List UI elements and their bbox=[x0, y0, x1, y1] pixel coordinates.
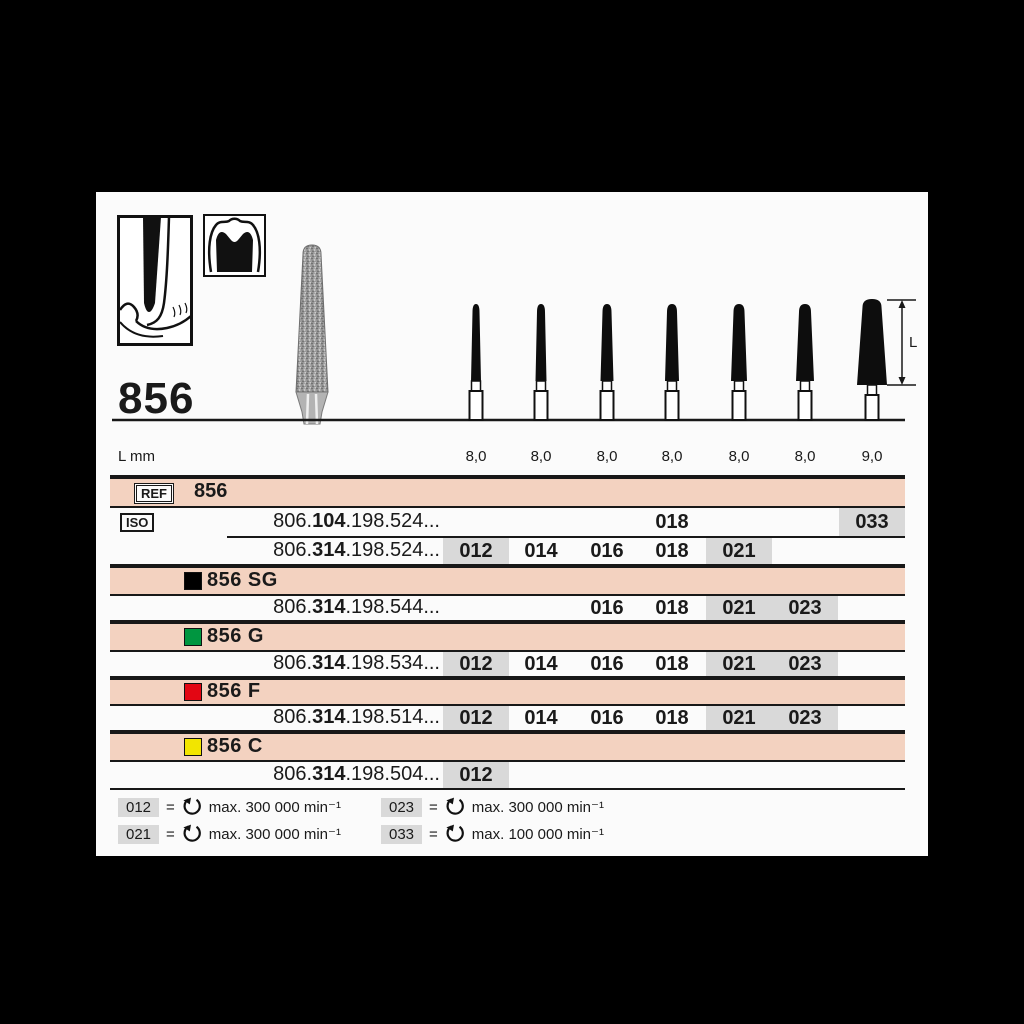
variant-name: 856 G bbox=[207, 625, 264, 648]
bur-head bbox=[471, 304, 481, 381]
size-cell: 014 bbox=[508, 538, 574, 564]
dimension-label: L bbox=[909, 334, 917, 351]
bur-shank bbox=[666, 391, 679, 420]
bur-head bbox=[536, 304, 547, 381]
bur-head bbox=[857, 299, 887, 385]
grit-color-square-black bbox=[184, 572, 202, 590]
variant-row-g: 856 G bbox=[110, 624, 905, 650]
size-cell-restricted: 021 bbox=[706, 596, 772, 620]
size-cell-restricted: 012 bbox=[443, 706, 509, 730]
grit-color-square-green bbox=[184, 628, 202, 646]
size-cell: 018 bbox=[639, 508, 705, 536]
size-cell-restricted: 033 bbox=[839, 508, 905, 536]
legend-item-033: 033 = max. 100 000 min⁻¹ bbox=[381, 823, 604, 845]
iso-code: 806.314.198.504... bbox=[216, 763, 440, 786]
size-cell-restricted: 023 bbox=[772, 596, 838, 620]
legend-size-badge: 023 bbox=[381, 798, 422, 817]
bur-head bbox=[665, 304, 679, 381]
length-value: 8,0 bbox=[706, 448, 772, 465]
bur-head bbox=[601, 304, 614, 381]
iso-code: 806.104.198.524... bbox=[216, 510, 440, 533]
size-cell: 016 bbox=[574, 596, 640, 620]
bur-shank bbox=[799, 391, 812, 420]
size-cell: 016 bbox=[574, 538, 640, 564]
size-cell: 018 bbox=[639, 538, 705, 564]
grit-color-square-red bbox=[184, 683, 202, 701]
length-value: 8,0 bbox=[508, 448, 574, 465]
size-cell-restricted: 012 bbox=[443, 652, 509, 676]
legend-item-021: 021 = max. 300 000 min⁻¹ bbox=[118, 823, 341, 845]
bur-head bbox=[796, 304, 814, 381]
size-cell: 018 bbox=[639, 652, 705, 676]
iso-code: 806.314.198.524... bbox=[216, 539, 440, 562]
legend-size-badge: 012 bbox=[118, 798, 159, 817]
size-cell-restricted: 012 bbox=[443, 538, 509, 564]
legend-speed-text: max. 300 000 min⁻¹ bbox=[209, 798, 341, 816]
length-row-label: L mm bbox=[118, 448, 155, 465]
variant-row-sg: 856 SG bbox=[110, 568, 905, 594]
length-value: 8,0 bbox=[772, 448, 838, 465]
length-value: 8,0 bbox=[443, 448, 509, 465]
bur-shank bbox=[733, 391, 746, 420]
ref-tag: REF bbox=[134, 483, 174, 504]
bur-silhouettes bbox=[470, 299, 888, 420]
bur-shank bbox=[535, 391, 548, 420]
rotation-speed-icon bbox=[182, 824, 202, 844]
variant-name: 856 C bbox=[207, 735, 263, 758]
iso-code: 806.314.198.514... bbox=[216, 706, 440, 729]
grit-color-square-yellow bbox=[184, 738, 202, 756]
bur-neck bbox=[472, 381, 481, 391]
size-cell-restricted: 023 bbox=[772, 706, 838, 730]
iso-row-handpiece: 806.314.198.524... 012 014 016 018 021 bbox=[96, 538, 928, 564]
legend-speed-text: max. 100 000 min⁻¹ bbox=[472, 825, 604, 843]
size-cell: 018 bbox=[639, 596, 705, 620]
ref-value: 856 bbox=[194, 480, 227, 503]
size-cell-restricted: 012 bbox=[443, 762, 509, 788]
legend-item-023: 023 = max. 300 000 min⁻¹ bbox=[381, 796, 604, 818]
code-row-f: 806.314.198.514... 012 014 016 018 021 0… bbox=[96, 706, 928, 730]
iso-tag: ISO bbox=[120, 513, 154, 532]
bur-neck bbox=[868, 385, 877, 395]
variant-row-f: 856 F bbox=[110, 680, 905, 704]
code-row-sg: 806.314.198.544... 016 018 021 023 bbox=[96, 596, 928, 620]
bur-neck bbox=[668, 381, 677, 391]
rotation-speed-icon bbox=[445, 824, 465, 844]
variant-name: 856 F bbox=[207, 680, 261, 703]
bur-shank bbox=[470, 391, 483, 420]
code-row-c: 806.314.198.504... 012 bbox=[96, 762, 928, 788]
bur-neck bbox=[801, 381, 810, 391]
legend-speed-text: max. 300 000 min⁻¹ bbox=[209, 825, 341, 843]
size-cell-restricted: 021 bbox=[706, 706, 772, 730]
catalog-panel: 856 L L mm 8,0 8,0 8,0 8,0 8,0 8,0 9,0 R… bbox=[96, 192, 928, 856]
size-cell: 016 bbox=[574, 652, 640, 676]
bur-head bbox=[731, 304, 747, 381]
legend-size-badge: 033 bbox=[381, 825, 422, 844]
iso-code: 806.314.198.544... bbox=[216, 596, 440, 619]
size-cell: 018 bbox=[639, 706, 705, 730]
variant-name: 856 SG bbox=[207, 569, 278, 592]
bur-neck bbox=[537, 381, 546, 391]
legend-size-badge: 021 bbox=[118, 825, 159, 844]
code-row-g: 806.314.198.534... 012 014 016 018 021 0… bbox=[96, 652, 928, 676]
iso-code: 806.314.198.534... bbox=[216, 652, 440, 675]
length-value: 8,0 bbox=[639, 448, 705, 465]
ref-row: REF 856 bbox=[110, 479, 905, 506]
bur-neck bbox=[603, 381, 612, 391]
divider-thin bbox=[110, 788, 905, 790]
size-cell-restricted: 023 bbox=[772, 652, 838, 676]
bur-shank bbox=[866, 395, 879, 420]
size-cell-restricted: 021 bbox=[706, 652, 772, 676]
bur-neck bbox=[735, 381, 744, 391]
size-cell: 016 bbox=[574, 706, 640, 730]
length-value: 8,0 bbox=[574, 448, 640, 465]
legend-speed-text: max. 300 000 min⁻¹ bbox=[472, 798, 604, 816]
page-background: 856 L L mm 8,0 8,0 8,0 8,0 8,0 8,0 9,0 R… bbox=[0, 0, 1024, 1024]
iso-row-turbine: ISO 806.104.198.524... 018 033 bbox=[96, 508, 928, 536]
rotation-speed-icon bbox=[182, 797, 202, 817]
size-cell: 014 bbox=[508, 706, 574, 730]
variant-row-c: 856 C bbox=[110, 734, 905, 760]
length-dimension-marker: L bbox=[887, 300, 917, 385]
bur-shank bbox=[601, 391, 614, 420]
rotation-speed-icon bbox=[445, 797, 465, 817]
length-value: 9,0 bbox=[839, 448, 905, 465]
size-cell: 014 bbox=[508, 652, 574, 676]
size-cell-restricted: 021 bbox=[706, 538, 772, 564]
legend-item-012: 012 = max. 300 000 min⁻¹ bbox=[118, 796, 341, 818]
